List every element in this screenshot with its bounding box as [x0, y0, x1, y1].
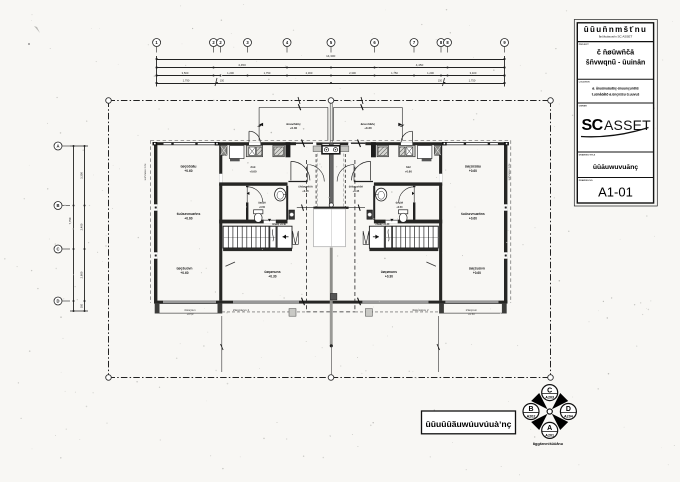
svg-text:+0.60: +0.60	[250, 169, 257, 173]
svg-text:B: B	[56, 203, 59, 208]
svg-text:PROJECT: PROJECT	[579, 44, 590, 46]
svg-text:D: D	[566, 406, 571, 413]
svg-text:1,750: 1,750	[469, 78, 476, 82]
svg-text:OWNER: OWNER	[579, 105, 587, 107]
svg-text:LOCATION: LOCATION	[579, 81, 590, 84]
svg-text:ūøçūčūāu: ūøçūčūāu	[465, 165, 481, 169]
svg-text:+0.45: +0.45	[353, 189, 360, 193]
svg-text:1,750: 1,750	[264, 71, 271, 75]
svg-text:ūøçūň: ūøçūň	[258, 202, 266, 205]
svg-text:+0.45: +0.45	[302, 189, 309, 193]
svg-text:4,450: 4,450	[416, 63, 424, 67]
svg-text:2,600: 2,600	[80, 271, 84, 278]
svg-text:+0.60: +0.60	[180, 271, 188, 275]
svg-text:ňšč: ňšč	[406, 165, 411, 169]
svg-text:+0.50: +0.50	[468, 312, 475, 316]
svg-text:3,300: 3,300	[80, 172, 84, 179]
svg-text:A201: A201	[545, 433, 554, 437]
svg-text:C: C	[547, 387, 552, 394]
svg-text:+0.50: +0.50	[396, 206, 403, 209]
svg-text:ūøçšuūvn: ūøçšuūvn	[469, 267, 485, 271]
svg-text:550: 550	[81, 303, 84, 308]
svg-text:ūøçšuūvn: ūøçšuūvn	[176, 267, 192, 271]
svg-text:1,790: 1,790	[183, 78, 190, 82]
svg-text:ūūāuwuvuānç: ūūāuwuvuānç	[593, 164, 639, 171]
svg-text:ūūuňnmšťnu: ūūuňnmšťnu	[584, 25, 648, 34]
svg-text:3,500: 3,500	[182, 71, 189, 75]
svg-text:čňuøç +0.40: čňuøç +0.40	[272, 223, 286, 226]
svg-text:+0.30: +0.30	[385, 274, 393, 278]
svg-text:ūøçūčūāu: ūøçūčūāu	[180, 165, 196, 169]
svg-text:čňšøçvňōň: čňšøçvňōň	[298, 185, 313, 189]
svg-text:D: D	[56, 299, 59, 304]
svg-text:ø. ånuūnuāuŧōç-ūnuunçunŧňš: ø. ånuūnuāuŧōç-ūnuunçunŧňš	[592, 87, 639, 91]
svg-text:šňvwqnũ - ūuinān: šňvwqnũ - ūuinān	[586, 60, 646, 67]
svg-text:+0.50: +0.50	[259, 206, 266, 209]
svg-text:ičāūçūāçvu 2: ičāūçūāçvu 2	[233, 308, 250, 312]
svg-text:+0.60: +0.60	[405, 169, 412, 173]
svg-text:A: A	[547, 425, 552, 432]
svg-text:A204: A204	[564, 415, 574, 419]
svg-text:+0.60: +0.60	[469, 216, 477, 220]
svg-text:čňuøç +0.40: čňuøç +0.40	[376, 223, 390, 226]
svg-text:14,300: 14,300	[326, 54, 336, 58]
svg-text:åggānvnišūūånu: åggānvnišūūånu	[533, 442, 564, 446]
svg-text:150: 150	[438, 79, 443, 82]
svg-text:ASSET: ASSET	[604, 117, 651, 133]
svg-text:ičāūçūāçvu 2: ičāūçūāçvu 2	[412, 308, 429, 312]
svg-text:ūøçønuns: ūøçønuns	[264, 270, 280, 274]
svg-text:+0.30: +0.30	[290, 126, 298, 130]
svg-text:+0.50: +0.50	[187, 312, 194, 316]
svg-text:DRAWING NO.: DRAWING NO.	[579, 179, 594, 182]
svg-text:ūøçūň: ūøçūň	[396, 202, 404, 205]
svg-text:3,400: 3,400	[470, 71, 477, 75]
svg-text:ičāūçūun: ičāūçūun	[184, 308, 196, 312]
svg-text:C: C	[56, 247, 59, 252]
svg-text:uučvnøuu 1.2u: uučvnøuu 1.2u	[144, 163, 147, 180]
svg-text:ūøçønuns: ūøçønuns	[381, 270, 397, 274]
svg-text:ičāūçūun: ičāūçūun	[466, 308, 478, 312]
svg-text:1,200: 1,200	[427, 71, 434, 75]
svg-text:+0.30: +0.30	[268, 274, 276, 278]
svg-text:DRAWING TITLE: DRAWING TITLE	[579, 153, 596, 156]
svg-text:ňšč: ňšč	[251, 165, 256, 169]
svg-text:+0.60: +0.60	[469, 169, 477, 173]
svg-text:2,300: 2,300	[349, 71, 356, 75]
svg-text:150: 150	[220, 79, 225, 82]
svg-text:+0.60: +0.60	[184, 216, 192, 220]
svg-text:+0.60: +0.60	[473, 271, 481, 275]
svg-text:čňšøçvňōň: čňšøçvňōň	[349, 185, 364, 189]
svg-text:2,300: 2,300	[306, 71, 313, 75]
svg-text:7,750: 7,750	[68, 217, 72, 224]
svg-text:A202: A202	[527, 415, 536, 419]
svg-text:2,400: 2,400	[80, 223, 84, 230]
svg-text:ānuvňāňç: ānuvňāňç	[286, 122, 301, 126]
svg-text:ānuvňāňç: ānuvňāňç	[361, 122, 376, 126]
svg-text:A: A	[56, 144, 59, 149]
svg-text:ūūuūūãuwúuvúuàʼnç: ūūuūūãuwúuvúuàʼnç	[426, 419, 512, 429]
svg-text:4,450: 4,450	[238, 63, 246, 67]
svg-text:1,200: 1,200	[227, 71, 234, 75]
svg-text:ånŭšuāsusňn SC ASSET: ånŭšuāsusňn SC ASSET	[599, 35, 633, 39]
svg-text:SC: SC	[582, 117, 604, 134]
svg-text:uučvnøuu 1.2u: uučvnøuu 1.2u	[508, 163, 511, 180]
svg-text:ŧ.uŭnåčåŧő ø.ūnçnšču ũ.uuvuš: ŧ.uŭnåčåŧő ø.ūnçnšču ũ.uuvuš	[592, 93, 640, 97]
svg-text:+0.60: +0.60	[184, 169, 192, 173]
svg-text:+0.30: +0.30	[364, 126, 372, 130]
svg-text:šuūszvnuøňns: šuūszvnuøňns	[177, 212, 201, 216]
svg-text:A203: A203	[545, 396, 554, 400]
svg-text:B: B	[528, 406, 533, 413]
svg-text:šuūszvnuøňns: šuūszvnuøňns	[461, 212, 485, 216]
svg-text:A1-01: A1-01	[598, 185, 633, 200]
svg-text:č ňøūwňčā: č ňøūwňčā	[597, 48, 635, 57]
